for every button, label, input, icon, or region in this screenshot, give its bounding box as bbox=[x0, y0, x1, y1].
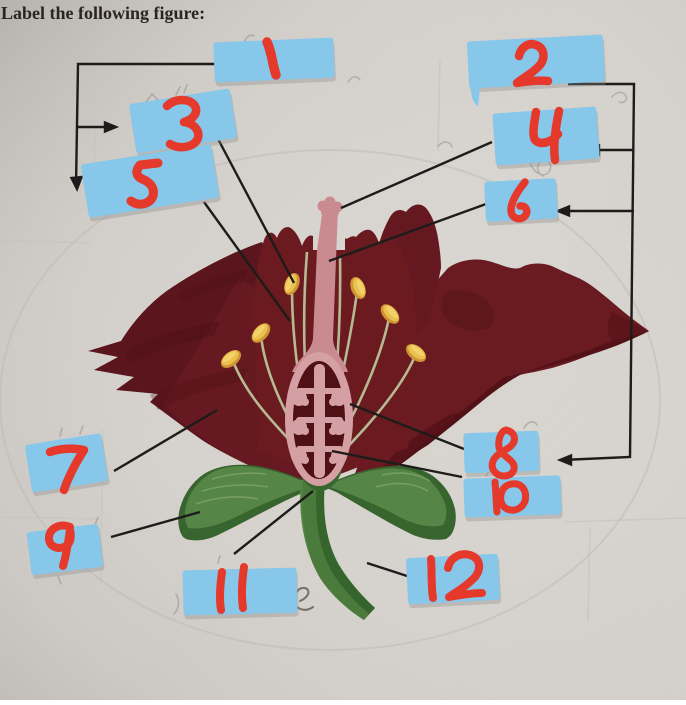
svg-text:Label the following figure:: Label the following figure: bbox=[1, 3, 205, 23]
